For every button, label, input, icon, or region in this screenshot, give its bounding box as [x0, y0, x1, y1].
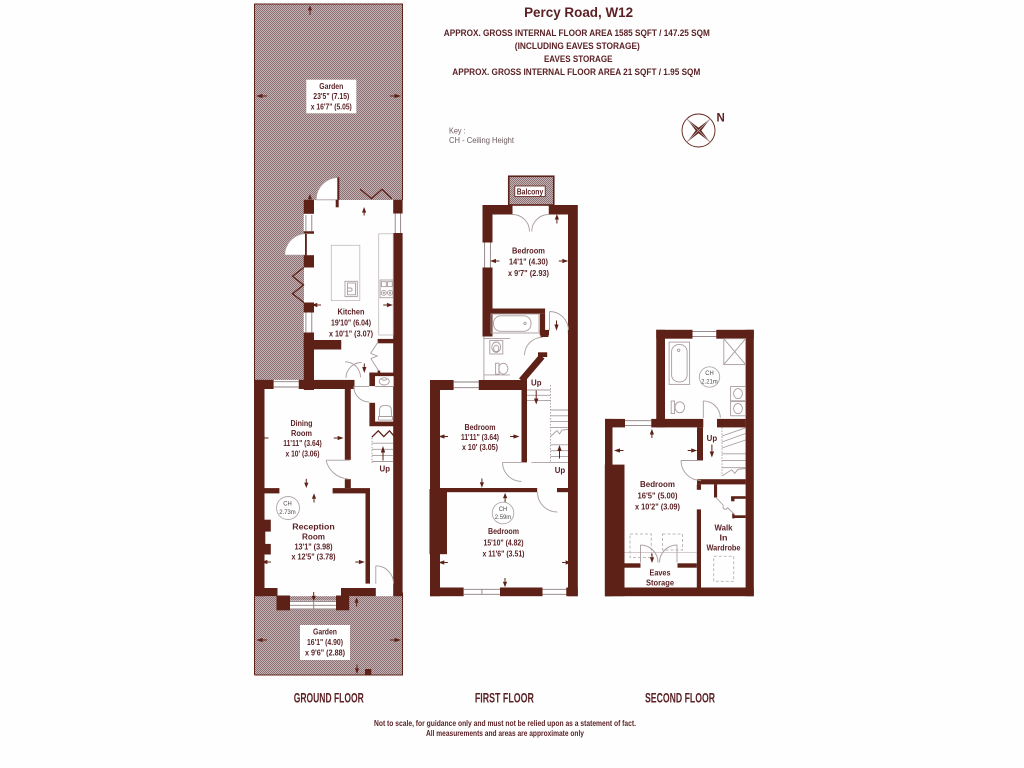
- svg-text:Bedroom: Bedroom: [512, 247, 545, 256]
- svg-text:Room: Room: [302, 533, 325, 542]
- svg-text:x 9'7" (2.93): x 9'7" (2.93): [508, 269, 549, 278]
- svg-text:Garden: Garden: [319, 82, 343, 91]
- svg-text:Up: Up: [531, 378, 542, 387]
- svg-text:16'1" (4.90): 16'1" (4.90): [307, 638, 343, 647]
- svg-text:23'5" (7.15): 23'5" (7.15): [313, 92, 349, 101]
- svg-text:FIRST FLOOR: FIRST FLOOR: [475, 690, 534, 706]
- svg-text:13'1" (3.98): 13'1" (3.98): [295, 543, 333, 552]
- svg-text:Wardrobe: Wardrobe: [707, 544, 742, 553]
- svg-text:2.73m: 2.73m: [279, 509, 296, 516]
- svg-text:11'11" (3.64): 11'11" (3.64): [461, 433, 499, 442]
- svg-text:APPROX. GROSS INTERNAL FLOOR A: APPROX. GROSS INTERNAL FLOOR AREA 1585 S…: [444, 28, 710, 38]
- svg-text:x 10'1" (3.07): x 10'1" (3.07): [329, 330, 373, 339]
- svg-text:2.21m: 2.21m: [701, 378, 718, 385]
- svg-text:Kitchen: Kitchen: [338, 308, 365, 317]
- svg-text:Storage: Storage: [646, 579, 675, 588]
- svg-text:Key :: Key :: [449, 127, 466, 136]
- svg-text:SECOND FLOOR: SECOND FLOOR: [645, 690, 715, 706]
- svg-text:x 16'7" (5.05): x 16'7" (5.05): [311, 103, 352, 112]
- svg-text:11'11" (3.64): 11'11" (3.64): [283, 439, 322, 448]
- svg-text:Up: Up: [555, 466, 566, 475]
- svg-text:Walk: Walk: [715, 524, 734, 533]
- svg-text:GROUND FLOOR: GROUND FLOOR: [294, 690, 364, 706]
- svg-text:In: In: [720, 534, 728, 543]
- svg-text:Bedroom: Bedroom: [488, 527, 519, 536]
- svg-text:Percy Road, W12: Percy Road, W12: [524, 5, 633, 21]
- svg-text:Garden: Garden: [313, 628, 337, 637]
- svg-text:Up: Up: [380, 465, 391, 474]
- svg-text:Dining: Dining: [291, 419, 313, 428]
- svg-text:Room: Room: [291, 429, 312, 438]
- svg-text:EAVES STORAGE: EAVES STORAGE: [544, 54, 613, 64]
- svg-text:16'5" (5.00): 16'5" (5.00): [638, 491, 678, 500]
- svg-text:14'1" (4.30): 14'1" (4.30): [509, 258, 548, 267]
- svg-text:Reception: Reception: [292, 523, 335, 532]
- svg-text:x 10' (3.05): x 10' (3.05): [462, 443, 498, 452]
- svg-text:Eaves: Eaves: [650, 569, 672, 578]
- svg-text:x 12'5" (3.78): x 12'5" (3.78): [292, 553, 336, 562]
- svg-text:APPROX. GROSS INTERNAL FLOOR A: APPROX. GROSS INTERNAL FLOOR AREA 21 SQF…: [452, 67, 700, 77]
- svg-text:CH: CH: [705, 370, 714, 377]
- svg-text:x 10' (3.06): x 10' (3.06): [286, 449, 320, 458]
- svg-text:19'10" (6.04): 19'10" (6.04): [331, 319, 371, 328]
- svg-text:N: N: [716, 112, 724, 124]
- svg-text:15'10" (4.82): 15'10" (4.82): [484, 538, 524, 547]
- svg-text:Up: Up: [707, 434, 718, 443]
- svg-text:CH: CH: [499, 506, 508, 513]
- svg-text:2.59m: 2.59m: [495, 514, 512, 521]
- svg-text:All measurements and areas are: All measurements and areas are approxima…: [426, 728, 584, 738]
- svg-text:Bedroom: Bedroom: [640, 480, 675, 489]
- svg-text:x 11'6" (3.51): x 11'6" (3.51): [483, 550, 525, 559]
- svg-text:(INCLUDING EAVES STORAGE): (INCLUDING EAVES STORAGE): [515, 41, 640, 51]
- svg-text:x 9'6" (2.88): x 9'6" (2.88): [305, 648, 345, 657]
- svg-text:Balcony: Balcony: [517, 187, 544, 196]
- svg-text:x 10'2" (3.09): x 10'2" (3.09): [635, 503, 680, 512]
- svg-text:CH - Ceiling Height: CH - Ceiling Height: [449, 136, 515, 145]
- svg-text:Bedroom: Bedroom: [465, 423, 496, 432]
- svg-text:CH: CH: [283, 501, 292, 508]
- svg-text:Not to scale, for guidance onl: Not to scale, for guidance only and must…: [374, 718, 636, 728]
